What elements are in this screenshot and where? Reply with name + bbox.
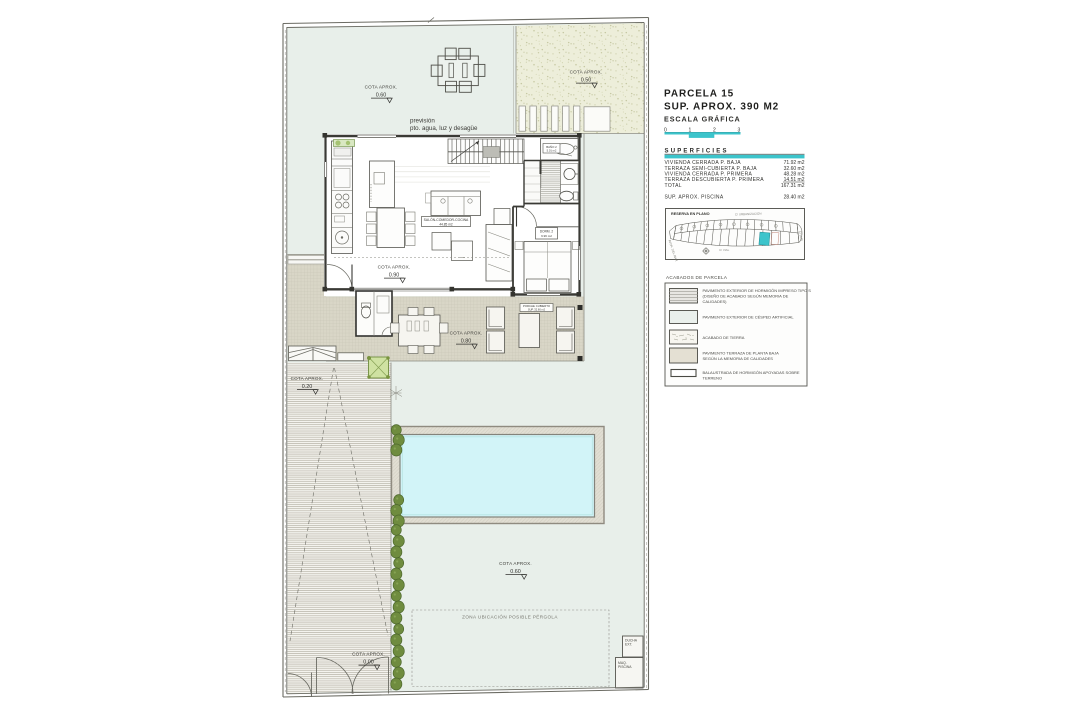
svg-text:RESERVA EN PLANO: RESERVA EN PLANO [671,212,710,216]
svg-text:ACABADO DE TIERRA: ACABADO DE TIERRA [703,335,745,340]
svg-text:5.01 m2: 5.01 m2 [547,148,557,152]
svg-text:BAÑO 2: BAÑO 2 [546,144,557,149]
svg-text:TOTAL: TOTAL [665,183,682,189]
svg-text:COTA APROX.: COTA APROX. [450,331,483,336]
svg-text:CALIDADES): CALIDADES) [703,299,728,304]
svg-text:SALÓN-COMEDOR-COCINA: SALÓN-COMEDOR-COCINA [424,217,469,222]
svg-text:ACABADOS DE PARCELA: ACABADOS DE PARCELA [666,275,728,280]
svg-text:EXT.: EXT. [625,643,632,647]
svg-text:PORCHE CUBIERTO: PORCHE CUBIERTO [523,304,551,308]
svg-text:SUP. APROX. PISCINA: SUP. APROX. PISCINA [665,195,724,201]
svg-text:PISCINA: PISCINA [618,665,632,669]
svg-text:ESCALA GRÁFICA: ESCALA GRÁFICA [664,115,741,124]
svg-text:PARCELA 15: PARCELA 15 [664,89,734,100]
svg-text:0.80: 0.80 [461,338,472,344]
svg-text:SEGÚN LA MEMORIA DE CALIDADES: SEGÚN LA MEMORIA DE CALIDADES [703,356,774,361]
svg-text:COTA APROX.: COTA APROX. [291,376,324,381]
svg-text:SUP. 32.60 m2: SUP. 32.60 m2 [528,308,546,312]
svg-text:COTA APROX.: COTA APROX. [365,85,398,90]
svg-text:28.40 m2: 28.40 m2 [784,195,805,201]
svg-text:9.96 m2: 9.96 m2 [541,234,552,238]
svg-text:COTA APROX.: COTA APROX. [499,561,532,566]
svg-text:0.00: 0.00 [363,659,374,665]
svg-text:PAVIMENTO TERRAZA DE PLANTA BA: PAVIMENTO TERRAZA DE PLANTA BAJA [703,351,780,356]
svg-text:(DISEÑO DE ACABADO SEGÚN MEMOR: (DISEÑO DE ACABADO SEGÚN MEMORIA DE [703,293,789,298]
svg-text:PAVIMENTO EXTERIOR DE CÉSPED A: PAVIMENTO EXTERIOR DE CÉSPED ARTIFICIAL [703,315,795,320]
svg-text:0.50: 0.50 [581,77,592,83]
svg-text:pto. agua, luz y desagüe: pto. agua, luz y desagüe [410,125,478,132]
svg-text:ZONA UBICACIÓN POSIBLE PÉRGOLA: ZONA UBICACIÓN POSIBLE PÉRGOLA [462,614,558,620]
svg-text:44.85 m2: 44.85 m2 [439,222,453,226]
svg-text:SUPERFICIES: SUPERFICIES [665,149,729,155]
svg-text:0.60: 0.60 [376,92,387,98]
svg-text:COTA APROX.: COTA APROX. [570,70,603,75]
svg-text:0.90: 0.90 [389,272,400,278]
svg-text:COTA APROX.: COTA APROX. [352,652,385,657]
svg-text:0.60: 0.60 [510,569,521,575]
svg-text:SUP. APROX. 390 M2: SUP. APROX. 390 M2 [664,102,779,113]
svg-text:BALAUSTRADA DE HORMIGÓN APOYAD: BALAUSTRADA DE HORMIGÓN APOYADAS SOBRE [703,370,800,375]
svg-text:PAVIMENTO EXTERIOR DE HORMIGÓN: PAVIMENTO EXTERIOR DE HORMIGÓN IMPRESO T… [703,288,812,293]
svg-text:C/ VIAL: C/ VIAL [719,248,730,252]
svg-text:previsión: previsión [410,118,435,125]
svg-text:0.20: 0.20 [302,384,313,390]
svg-text:TERRENO: TERRENO [703,375,723,380]
svg-text:167.31 m2: 167.31 m2 [781,183,805,189]
svg-text:COTA APROX.: COTA APROX. [378,265,411,270]
svg-text:C/ URBANIZACIÓN: C/ URBANIZACIÓN [735,211,762,217]
